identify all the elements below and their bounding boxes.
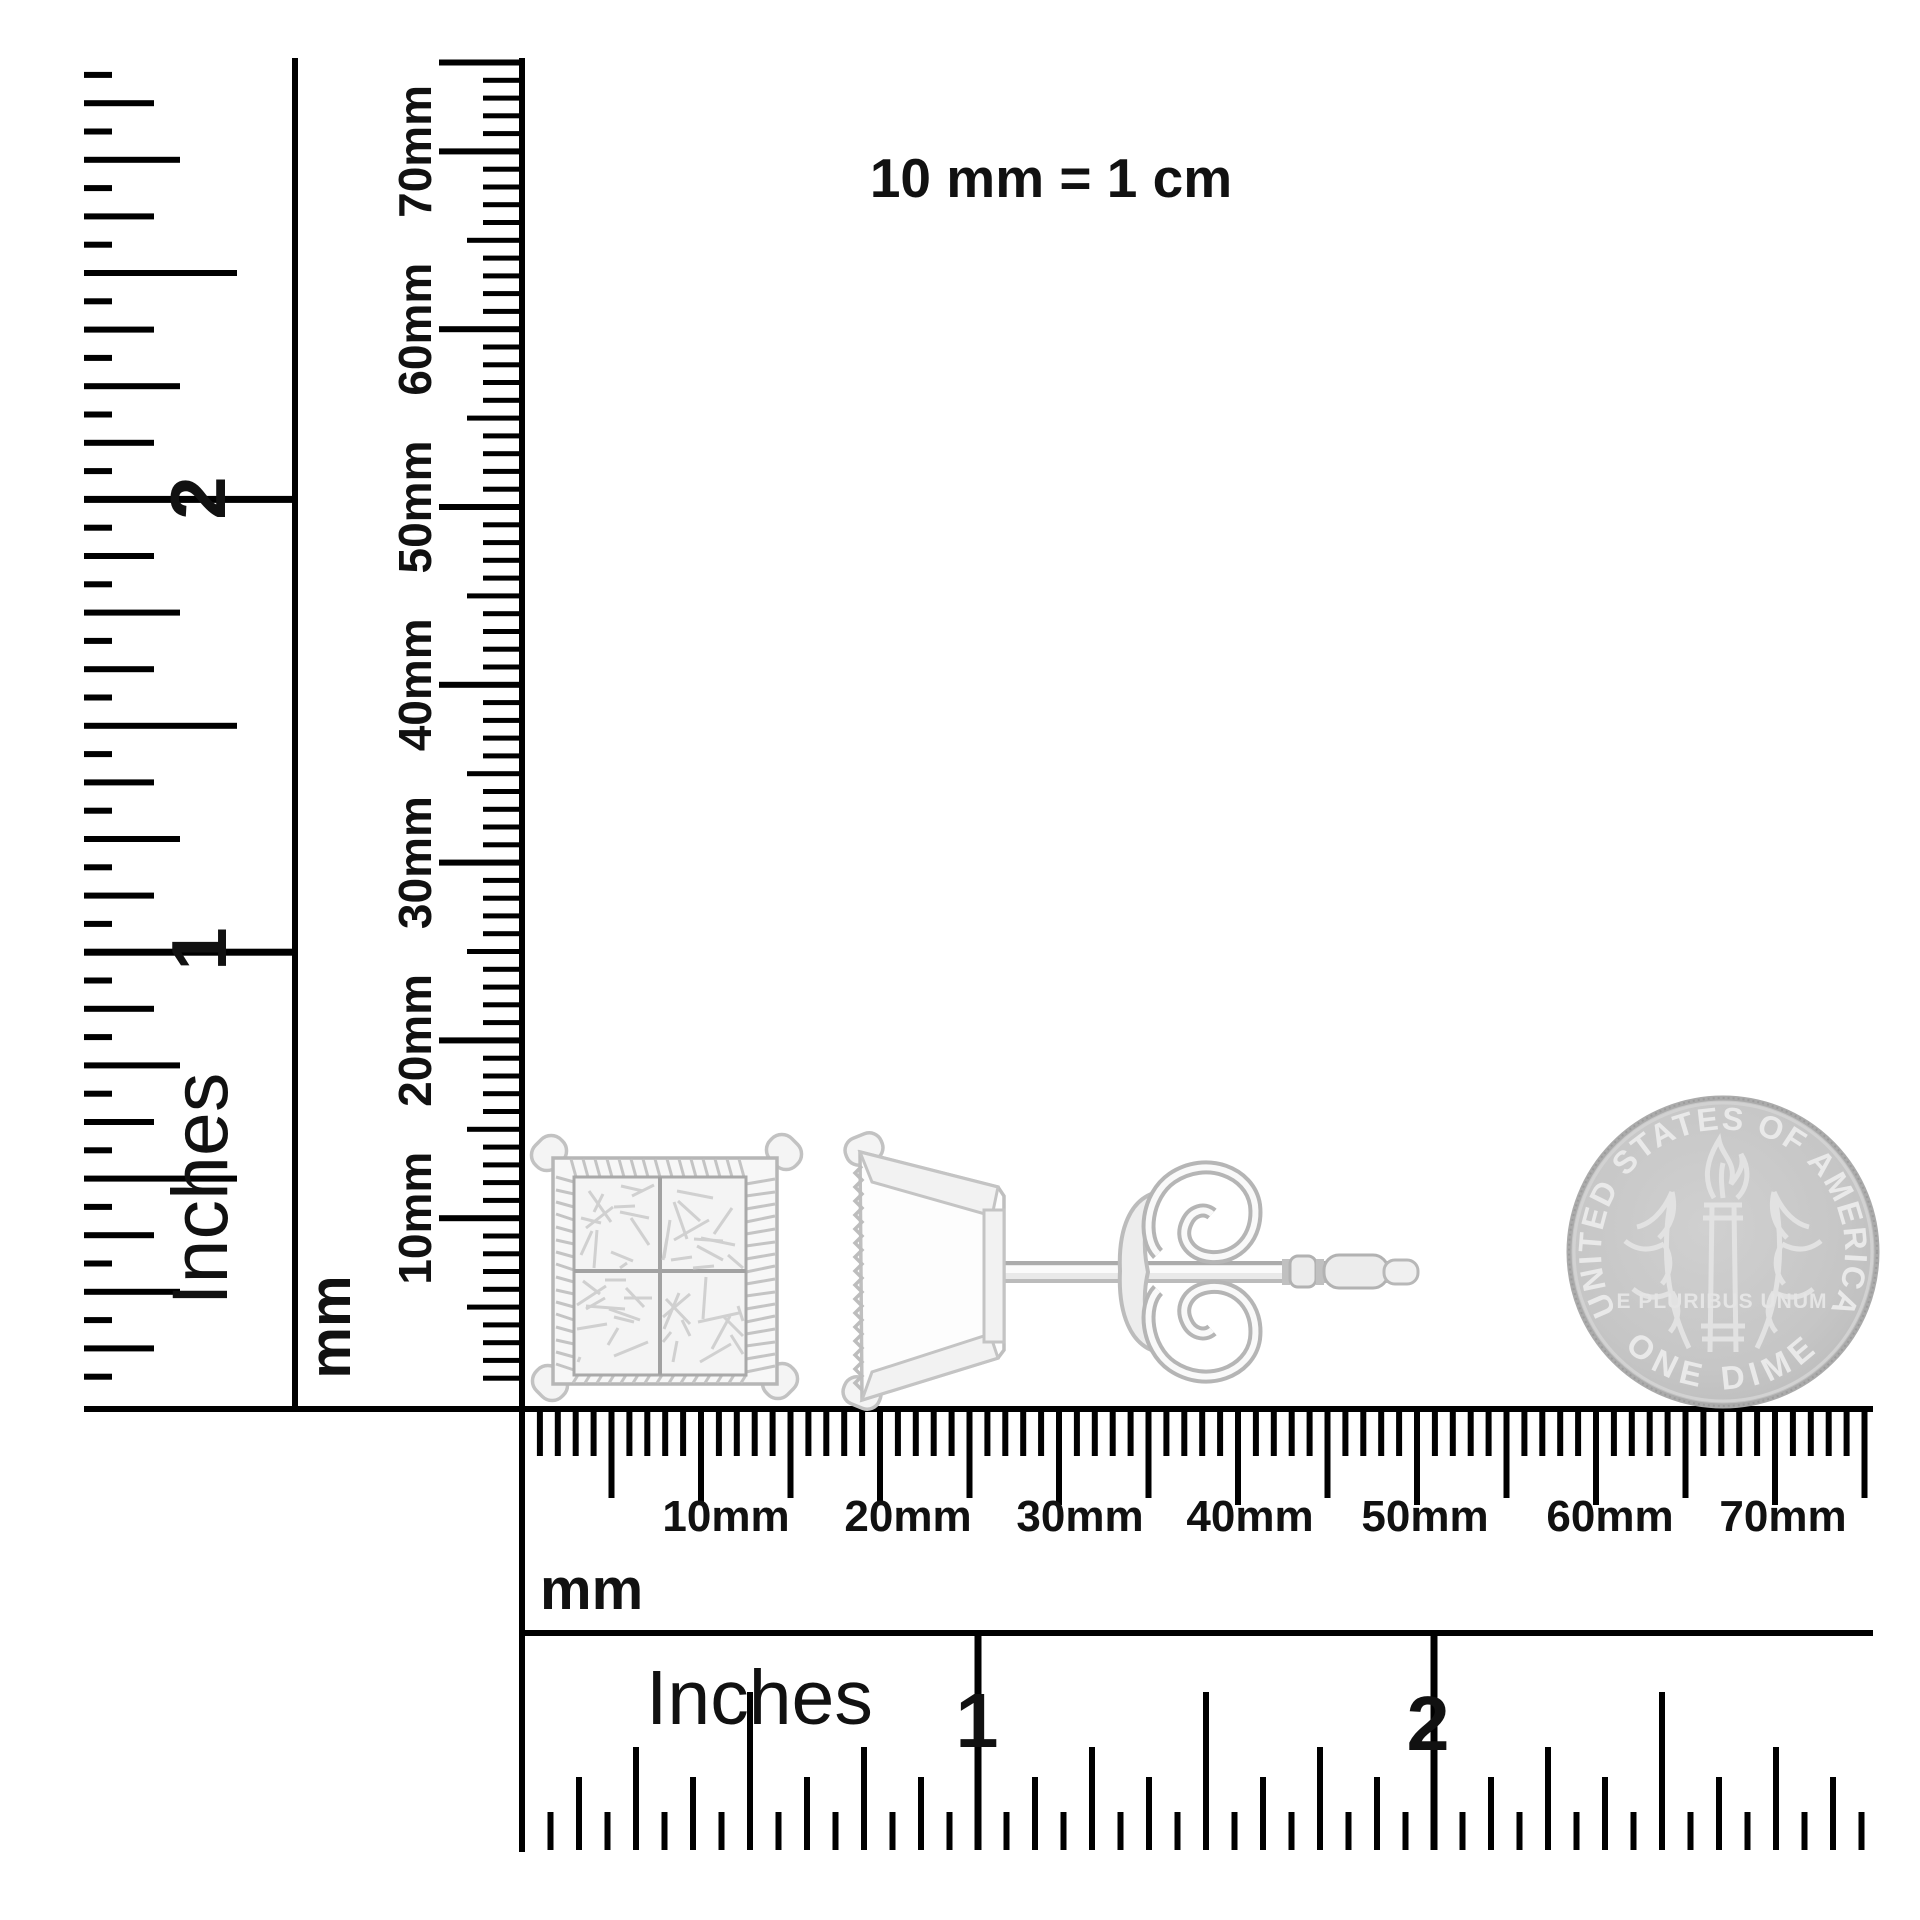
svg-text:60mm: 60mm (389, 263, 441, 396)
svg-text:30mm: 30mm (389, 796, 441, 929)
svg-text:mm: mm (540, 1557, 643, 1622)
svg-text:40mm: 40mm (389, 618, 441, 751)
svg-text:50mm: 50mm (1361, 1492, 1488, 1541)
svg-text:60mm: 60mm (1546, 1492, 1673, 1541)
svg-text:1: 1 (155, 927, 243, 970)
svg-text:30mm: 30mm (1016, 1492, 1143, 1541)
svg-text:mm: mm (298, 1275, 363, 1378)
svg-text:1: 1 (956, 1678, 999, 1764)
svg-text:Inches: Inches (646, 1655, 873, 1741)
svg-text:10 mm = 1 cm: 10 mm = 1 cm (870, 147, 1232, 209)
svg-text:Inches: Inches (155, 1073, 244, 1306)
svg-text:20mm: 20mm (389, 974, 441, 1107)
svg-text:2: 2 (1407, 1681, 1450, 1767)
svg-text:20mm: 20mm (844, 1492, 971, 1541)
svg-text:70mm: 70mm (1719, 1492, 1846, 1541)
svg-text:50mm: 50mm (389, 441, 441, 574)
svg-text:10mm: 10mm (662, 1492, 789, 1541)
svg-text:E PLURIBUS UNUM: E PLURIBUS UNUM (1616, 1290, 1827, 1313)
svg-text:70mm: 70mm (389, 85, 441, 218)
svg-text:10mm: 10mm (389, 1152, 441, 1285)
svg-text:40mm: 40mm (1186, 1492, 1313, 1541)
svg-text:2: 2 (154, 476, 242, 519)
